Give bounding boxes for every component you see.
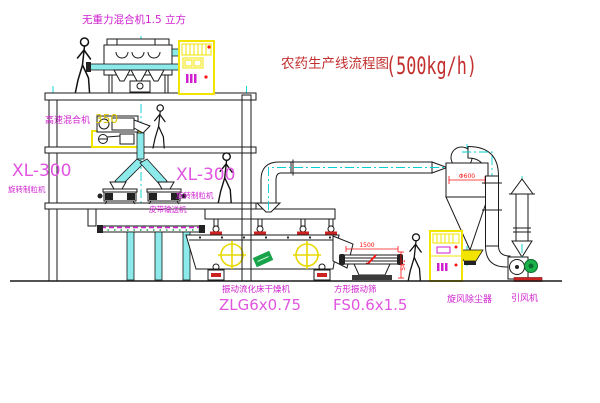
gravity-mixer <box>86 39 189 93</box>
label-high-speed-mixer-size: 350 <box>95 112 118 126</box>
label-granulator-model-left: XL-300 <box>12 161 71 181</box>
label-vibrating-sieve: 方形振动筛 <box>334 284 377 295</box>
label-high-speed-mixer-name: 高速混合机 <box>45 114 90 126</box>
worker-figure <box>408 234 421 281</box>
label-fluid-bed-dryer-model: ZLG6x0.75 <box>219 296 301 314</box>
control-cabinet-upper <box>179 41 214 94</box>
worker-figure <box>153 105 165 148</box>
label-granulator-left: 旋转制粒机 <box>8 184 46 194</box>
label-cyclone: 旋风除尘器 <box>447 293 492 305</box>
dim-sieve-height: 541 <box>400 259 407 271</box>
fluid-bed-dryer <box>186 203 353 280</box>
exhaust-stack <box>509 176 535 257</box>
diagram-canvas: Φ600 1500 <box>0 0 600 403</box>
label-fluid-bed-dryer: 振动流化床干燥机 <box>222 284 291 295</box>
process-flow-diagram: Φ600 1500 <box>0 0 600 403</box>
dim-sieve-length: 1500 <box>359 242 374 249</box>
label-gravity-mixer: 无重力混合机1.5 立方 <box>82 13 186 26</box>
dim-cyclone-diameter: Φ600 <box>459 173 475 180</box>
control-cabinet-lower <box>430 231 462 281</box>
label-vibrating-sieve-model: FS0.6x1.5 <box>333 296 407 314</box>
label-granulator-model-right: XL-300 <box>176 165 235 185</box>
induced-draft-fan <box>508 241 542 282</box>
granulator-left <box>98 189 138 204</box>
label-fan: 引风机 <box>511 292 538 304</box>
title-text: 农药生产线流程图 <box>281 56 389 72</box>
belt-conveyor <box>88 209 205 280</box>
spring-mounts <box>210 219 337 235</box>
label-granulator-right: 旋转制粒机 <box>176 190 214 200</box>
title-capacity: (500kg/h) <box>386 52 477 80</box>
exhaust-duct <box>261 160 447 211</box>
label-belt-conveyor: 皮带输送机 <box>149 204 187 214</box>
